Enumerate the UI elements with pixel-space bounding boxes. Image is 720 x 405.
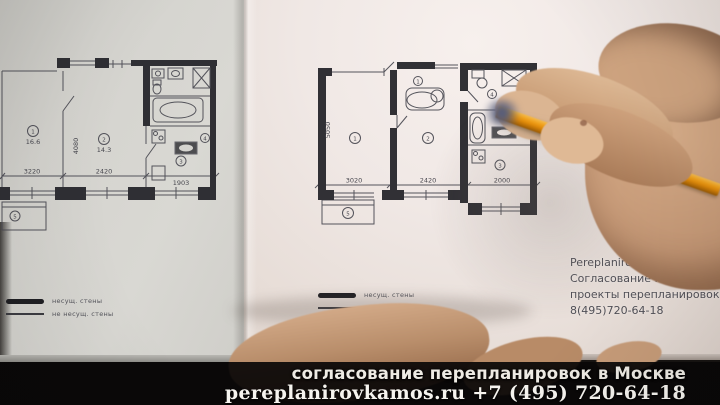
hand-with-pencil: [0, 0, 720, 405]
caption-band: согласование перепланировок в Москве per…: [0, 362, 720, 405]
pencil-tip: [481, 99, 523, 127]
caption-line-2: pereplanirovkamos.ru +7 (495) 720-64-18: [225, 383, 686, 404]
caption-line-1: согласование перепланировок в Москве: [292, 364, 686, 383]
skin-mark: [580, 120, 587, 126]
video-frame: 1 16.6 2 14.3 3 4 5 3220 2420 1903 4080: [0, 0, 720, 405]
